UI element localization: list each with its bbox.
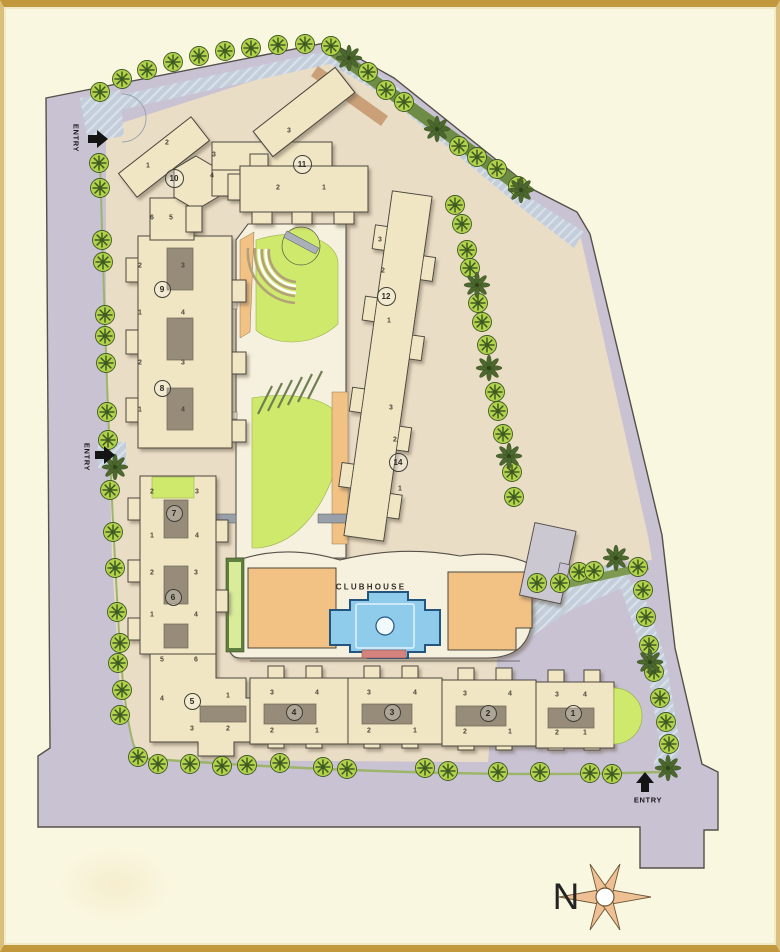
tree-icon: [453, 215, 472, 234]
tree-icon: [603, 765, 622, 784]
tree-icon: [108, 603, 127, 622]
palm-tree-icon: [637, 649, 663, 675]
north-compass-icon: [559, 864, 651, 930]
tree-icon: [395, 93, 414, 112]
tree-icon: [98, 403, 117, 422]
tree-icon: [637, 608, 656, 627]
tree-icon: [149, 755, 168, 774]
tree-icon: [473, 313, 492, 332]
tree-icon: [138, 61, 157, 80]
tree-icon: [478, 336, 497, 355]
tree-icon: [296, 35, 315, 54]
tree-icon: [113, 70, 132, 89]
building-2-shape: [442, 668, 536, 750]
tree-icon: [660, 735, 679, 754]
tree-icon: [109, 654, 128, 673]
tree-icon: [450, 137, 469, 156]
tree-icon: [322, 37, 341, 56]
tree-icon: [93, 231, 112, 250]
palm-tree-icon: [336, 45, 362, 71]
tree-icon: [338, 760, 357, 779]
tree-icon: [101, 481, 120, 500]
tree-icon: [99, 431, 118, 450]
tree-icon: [113, 681, 132, 700]
paper-stain: [55, 845, 175, 925]
palm-tree-icon: [464, 272, 490, 298]
tree-icon: [581, 764, 600, 783]
building-4-shape: [250, 666, 348, 748]
tree-icon: [359, 63, 378, 82]
building-1-shape: [536, 670, 614, 750]
palm-tree-icon: [655, 755, 681, 781]
tree-icon: [129, 748, 148, 767]
tree-icon: [97, 354, 116, 373]
tree-icon: [458, 241, 477, 260]
tree-icon: [111, 634, 130, 653]
tree-icon: [657, 713, 676, 732]
site-plan-canvas: [0, 0, 780, 952]
tree-icon: [216, 42, 235, 61]
tree-icon: [96, 306, 115, 325]
tree-icon: [94, 253, 113, 272]
tree-icon: [269, 36, 288, 55]
tree-icon: [551, 574, 570, 593]
palm-tree-icon: [508, 177, 534, 203]
tree-icon: [446, 196, 465, 215]
tree-icon: [629, 558, 648, 577]
tree-icon: [181, 755, 200, 774]
tree-icon: [531, 763, 550, 782]
tree-icon: [634, 581, 653, 600]
clubhouse-west-wing: [248, 568, 336, 648]
tree-icon: [489, 402, 508, 421]
tree-icon: [164, 53, 183, 72]
tree-icon: [238, 756, 257, 775]
tree-icon: [213, 757, 232, 776]
tree-icon: [104, 523, 123, 542]
palm-tree-icon: [496, 443, 522, 469]
tree-icon: [468, 148, 487, 167]
tree-icon: [416, 759, 435, 778]
tree-icon: [439, 762, 458, 781]
tree-icon: [489, 763, 508, 782]
tree-icon: [111, 706, 130, 725]
site-plan-photo: 1234567891011121465231423142314231456413…: [0, 0, 780, 952]
tree-icon: [90, 154, 109, 173]
tree-icon: [494, 425, 513, 444]
palm-tree-icon: [476, 355, 502, 381]
tree-icon: [488, 160, 507, 179]
tree-icon: [528, 574, 547, 593]
tree-icon: [377, 81, 396, 100]
tree-icon: [651, 689, 670, 708]
tree-icon: [96, 327, 115, 346]
clubhouse-area: [226, 551, 532, 661]
tree-icon: [190, 47, 209, 66]
tree-icon: [91, 179, 110, 198]
palm-tree-icon: [424, 116, 450, 142]
tree-icon: [486, 383, 505, 402]
tree-icon: [314, 758, 333, 777]
tree-icon: [271, 754, 290, 773]
tree-icon: [585, 562, 604, 581]
tree-icon: [505, 488, 524, 507]
tree-icon: [91, 83, 110, 102]
palm-tree-icon: [603, 545, 629, 571]
tree-icon: [503, 463, 522, 482]
pool-deck-strip: [362, 650, 406, 658]
building-9-8-shape: [126, 198, 246, 448]
tree-icon: [106, 559, 125, 578]
tree-icon: [242, 39, 261, 58]
building-3-shape: [348, 666, 442, 748]
